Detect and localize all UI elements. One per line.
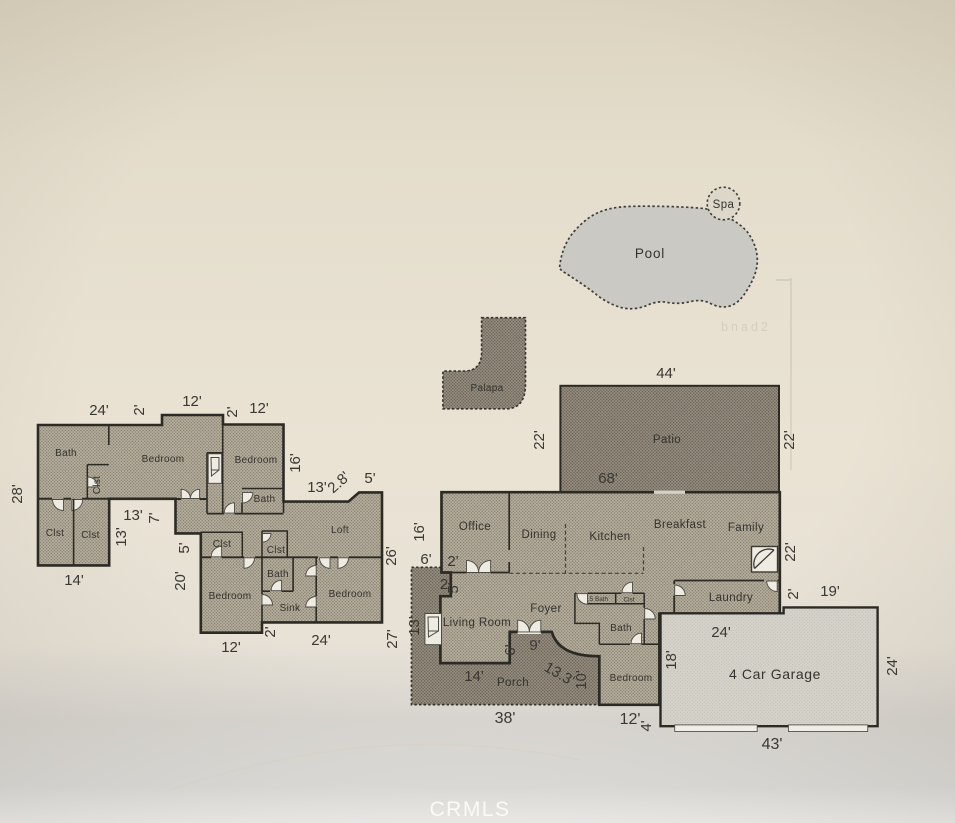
svg-text:2': 2' [262, 626, 279, 637]
svg-text:22': 22' [781, 430, 798, 450]
svg-text:27': 27' [384, 629, 401, 649]
svg-text:26': 26' [383, 546, 400, 566]
svg-text:Living Room: Living Room [443, 617, 511, 629]
svg-text:24': 24' [311, 632, 331, 649]
svg-text:Palapa: Palapa [471, 383, 504, 394]
svg-text:24': 24' [711, 624, 731, 641]
svg-text:4': 4' [638, 720, 655, 731]
svg-text:12': 12' [249, 400, 269, 417]
svg-text:Sink: Sink [280, 603, 301, 614]
svg-text:38': 38' [495, 710, 516, 727]
svg-text:2': 2' [785, 588, 802, 599]
svg-text:13': 13' [406, 616, 423, 636]
svg-text:Dining: Dining [521, 529, 556, 541]
svg-text:24': 24' [884, 656, 901, 676]
svg-text:6': 6' [502, 644, 519, 655]
svg-text:13': 13' [307, 479, 327, 496]
svg-text:2': 2' [131, 404, 148, 415]
svg-text:22': 22' [782, 542, 799, 562]
svg-text:Bedroom: Bedroom [610, 673, 653, 684]
svg-text:Porch: Porch [497, 677, 529, 689]
svg-text:12': 12' [620, 711, 641, 728]
svg-text:5': 5' [176, 542, 193, 553]
svg-text:6': 6' [420, 551, 431, 568]
svg-text:Bedroom: Bedroom [329, 589, 372, 600]
svg-text:Bath: Bath [55, 448, 77, 459]
svg-text:Clst: Clst [623, 597, 634, 604]
svg-text:16': 16' [287, 453, 304, 473]
svg-text:Pool: Pool [635, 246, 665, 261]
svg-text:12': 12' [221, 639, 241, 656]
svg-text:Kitchen: Kitchen [589, 531, 630, 543]
svg-text:18': 18' [663, 650, 680, 670]
svg-text:Bath: Bath [267, 569, 289, 580]
svg-text:Office: Office [459, 521, 491, 533]
svg-text:5': 5' [364, 470, 375, 487]
svg-text:4 Car Garage: 4 Car Garage [729, 666, 821, 682]
svg-text:9': 9' [529, 637, 540, 654]
svg-text:Bedroom: Bedroom [209, 591, 252, 602]
svg-text:Laundry: Laundry [709, 592, 753, 604]
svg-text:Bath: Bath [610, 623, 632, 634]
svg-text:20': 20' [172, 571, 189, 591]
svg-text:43': 43' [762, 736, 783, 753]
svg-text:68': 68' [598, 470, 618, 487]
svg-text:bnad2: bnad2 [721, 320, 771, 334]
svg-text:Breakfast: Breakfast [654, 519, 707, 531]
svg-text:Clst: Clst [46, 528, 64, 539]
svg-text:Bedroom: Bedroom [235, 455, 278, 466]
svg-text:24': 24' [89, 402, 109, 419]
svg-text:Family: Family [728, 522, 764, 534]
svg-text:Foyer: Foyer [530, 603, 561, 615]
svg-text:Clst: Clst [92, 476, 103, 494]
svg-text:Spa: Spa [713, 199, 735, 211]
svg-text:Clst: Clst [267, 545, 285, 556]
svg-text:28': 28' [9, 484, 26, 504]
svg-text:.5 Bath: .5 Bath [588, 596, 609, 603]
svg-text:7': 7' [146, 512, 163, 523]
svg-text:Loft: Loft [331, 525, 349, 536]
svg-text:Clst: Clst [81, 530, 99, 541]
svg-text:5': 5' [445, 582, 462, 593]
svg-text:14': 14' [64, 572, 84, 589]
svg-text:Patio: Patio [653, 434, 681, 446]
svg-text:CRMLS: CRMLS [429, 798, 510, 821]
svg-text:12': 12' [182, 393, 202, 410]
svg-text:13': 13' [123, 507, 143, 524]
svg-text:44': 44' [656, 365, 676, 382]
svg-text:16': 16' [411, 522, 428, 542]
svg-text:13': 13' [113, 527, 130, 547]
svg-text:22': 22' [531, 430, 548, 450]
svg-text:2': 2' [447, 553, 458, 570]
svg-text:2': 2' [224, 406, 241, 417]
svg-text:14': 14' [464, 668, 484, 685]
svg-text:Clst: Clst [213, 539, 231, 550]
svg-text:Bedroom: Bedroom [142, 454, 185, 465]
svg-text:19': 19' [820, 583, 840, 600]
svg-text:10': 10' [573, 670, 590, 690]
svg-text:Bath: Bath [254, 494, 276, 505]
